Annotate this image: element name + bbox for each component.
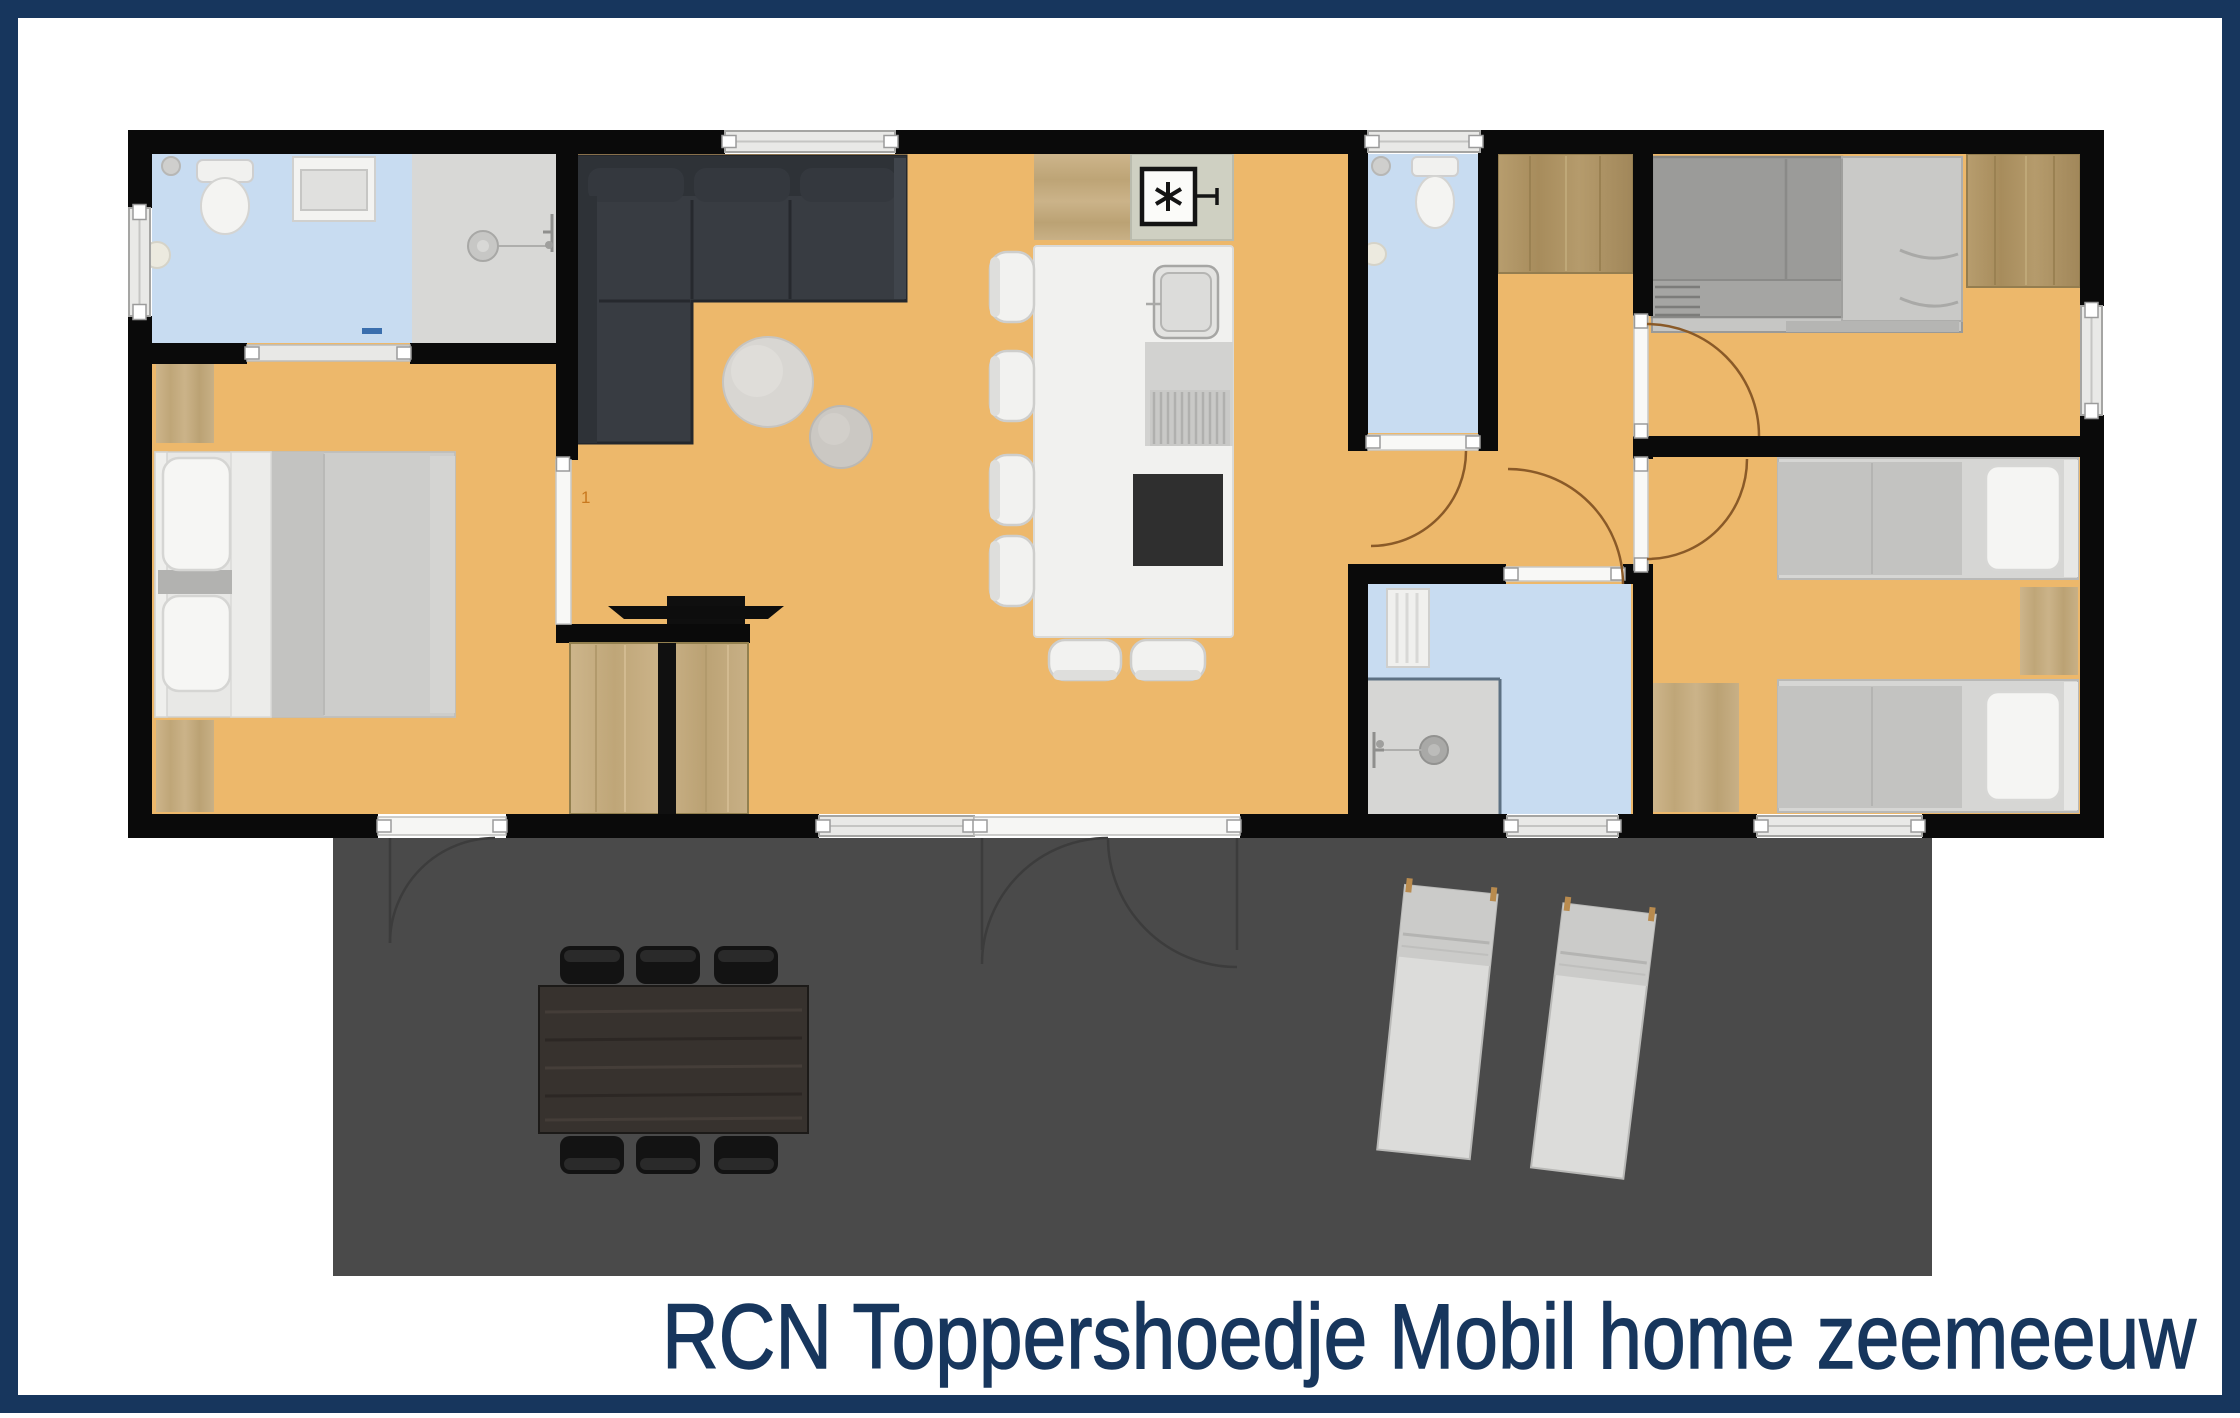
svg-text:1: 1 [581,488,590,507]
svg-text:RCN Toppershoedje Mobil home z: RCN Toppershoedje Mobil home zeemeeuw [662,1286,2196,1388]
